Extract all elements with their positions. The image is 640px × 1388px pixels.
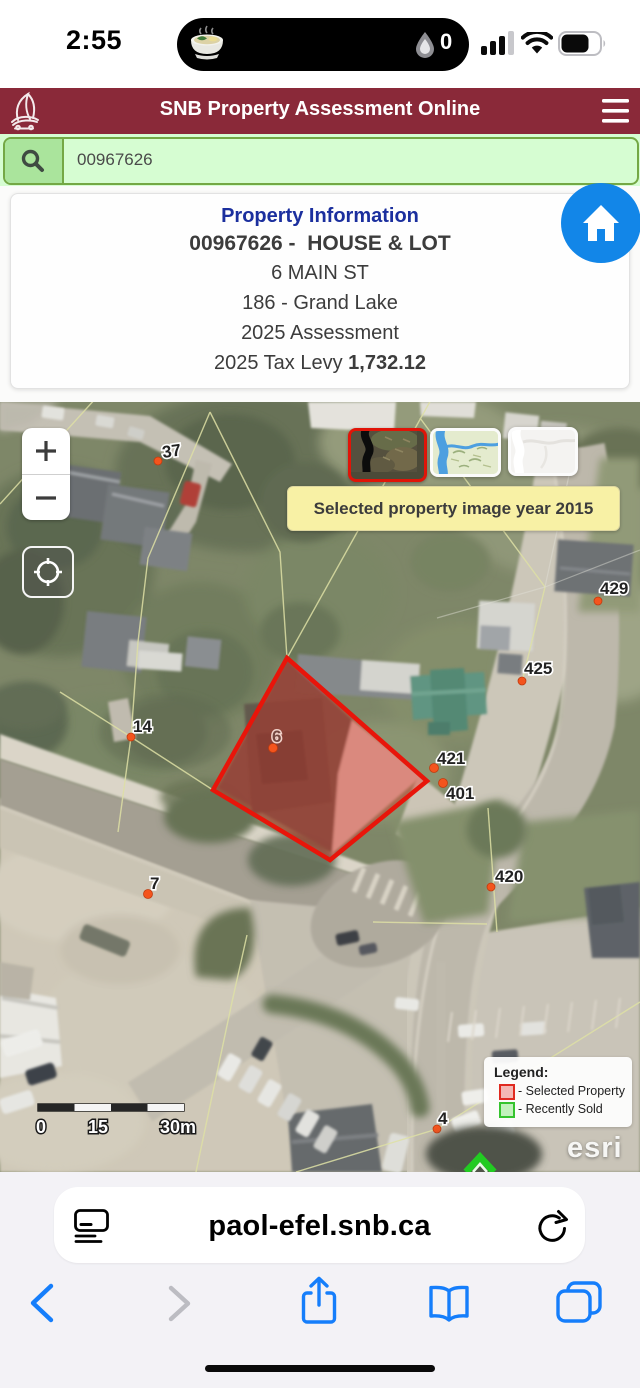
svg-text:421: 421 bbox=[437, 749, 465, 768]
svg-text:14: 14 bbox=[133, 717, 152, 736]
svg-text:0: 0 bbox=[36, 1117, 46, 1137]
svg-text:30m: 30m bbox=[160, 1117, 196, 1137]
svg-text:429: 429 bbox=[600, 579, 628, 598]
svg-text:425: 425 bbox=[524, 659, 552, 678]
svg-text:4: 4 bbox=[438, 1109, 448, 1128]
svg-text:7: 7 bbox=[150, 874, 159, 893]
svg-text:420: 420 bbox=[495, 867, 523, 886]
svg-text:401: 401 bbox=[446, 784, 474, 803]
svg-text:15: 15 bbox=[88, 1117, 108, 1137]
svg-text:37: 37 bbox=[161, 441, 182, 462]
